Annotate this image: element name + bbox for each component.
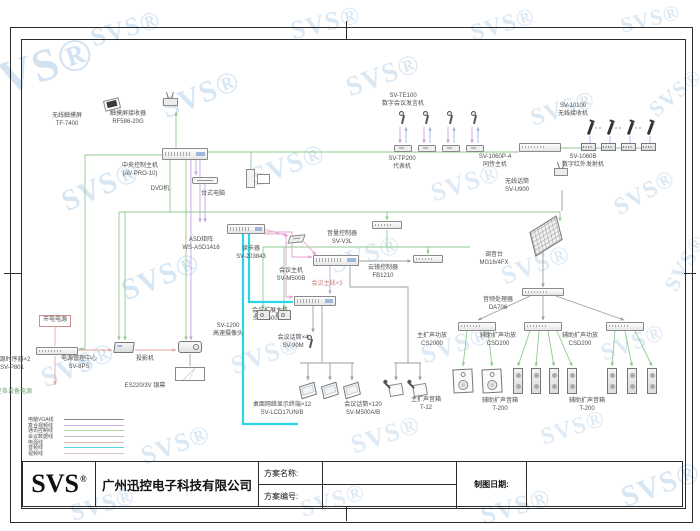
pantilt-controller-label: 云镜控制器 FB1210 — [338, 265, 428, 280]
wire-legend: 电脑VGA线复合视频线通讯控制线会议数据线电源线音频线视频线 — [28, 417, 124, 456]
interpretation-host-label: SV-1060P-4 同传主机 — [450, 154, 540, 169]
wire-k-57 — [556, 296, 624, 320]
delegate-unit-1-icon — [394, 145, 412, 152]
conference-host-icon — [313, 255, 359, 266]
logo-text: SVS — [31, 469, 79, 499]
wireless-mic-icon — [554, 168, 568, 176]
aux-speaker-1b-icon — [531, 368, 541, 394]
mixer-label: 调音台 MG16/4FX — [449, 252, 539, 267]
legend-line-sample — [64, 436, 124, 437]
main-speaker-1-icon — [452, 368, 473, 393]
conference-mic-top-3-icon — [447, 111, 455, 124]
scheme-name-label: 方案名称: — [259, 462, 323, 485]
schematic-sheet: { "title_block": { "logo": "SVS", "reg":… — [0, 0, 700, 531]
aux-speaker-2b-icon — [627, 368, 637, 394]
aux-speaker-1d-icon — [567, 368, 577, 394]
conference-mic-top-2-icon — [423, 111, 431, 124]
wire-m-43 — [264, 229, 288, 236]
title-block: SVS® 广州迅控电子科技有限公司 方案名称: 方案编号: 制图日期: — [22, 461, 683, 507]
wireless-mic-label: 无线话筒 SV-U900 — [472, 179, 562, 194]
ir-transmitter-1-icon — [581, 143, 596, 151]
conference-mic-120b-icon — [412, 383, 428, 397]
conference-trunk-label: 会议主线×3 — [282, 281, 372, 289]
wire-g-25 — [635, 331, 652, 366]
delegate-unit-2-icon — [418, 145, 436, 152]
aux-amp-1-label: 辅助扩声功放 CSD200 — [453, 333, 543, 348]
power-sequencer-icon — [36, 347, 78, 355]
registered-mark: ® — [80, 474, 87, 484]
central-controller-icon — [162, 148, 208, 160]
audio-processor-icon — [522, 288, 564, 296]
ir-transmitter-3-icon — [621, 143, 636, 151]
conference-mic-top-1-icon — [399, 111, 407, 124]
ir-transmitter-4-icon — [641, 143, 656, 151]
card-reader-label: 读卡器 SV-203843 — [206, 246, 296, 261]
aux-speaker-2a-icon — [607, 368, 617, 394]
drawing-date-label: 制图日期: — [457, 462, 527, 506]
conference-mic-120a-icon — [388, 383, 404, 397]
pantilt-controller-icon — [413, 255, 443, 263]
aux-speaker-1a-icon — [513, 368, 523, 394]
touchscreen-receiver-label: 触摸屏接收器 RF586-20G — [83, 111, 173, 126]
legend-line-sample — [64, 419, 124, 420]
ir-transmitter-2-icon — [601, 143, 616, 151]
touchscreen-receiver-icon — [163, 98, 178, 106]
ir-transmitter-4-label: SV-1060B 数字红外发射机 — [538, 154, 628, 169]
central-controller-label: 中央控制主机 (AV-PRO-10) — [95, 163, 185, 178]
scheme-name-value — [323, 462, 457, 485]
projection-screen-icon — [175, 367, 205, 381]
volume-controller-icon — [372, 221, 402, 229]
conference-ext-host-label: 会议扩展主机 SV-M500B-2 — [225, 308, 315, 323]
aux-speaker-1d-label: 辅助扩声音箱 T-200 — [455, 398, 545, 413]
company-logo: SVS® — [23, 462, 96, 506]
audio-processor-label: 音频处理器 DA706 — [453, 297, 543, 312]
wire-g-16 — [79, 155, 162, 349]
aux-amp-2-icon — [606, 322, 644, 331]
desktop-terminal-3-label: 桌面网络显示终端×12 SV-LCD17UN/B — [237, 402, 327, 417]
interpretation-host-icon — [519, 143, 561, 152]
dvd-player-icon — [192, 177, 218, 184]
conference-mic-top-4-icon — [471, 111, 479, 124]
speed-camera-2-icon — [278, 310, 291, 320]
scheme-no-label: 方案编号: — [259, 485, 323, 508]
projection-screen-label: ES220/3V 银幕 — [100, 383, 190, 391]
conference-ext-host-icon — [294, 296, 336, 306]
legend-line-sample — [64, 442, 124, 443]
main-amp-icon — [458, 322, 496, 331]
legend-line-sample — [64, 453, 124, 454]
speed-camera-1-icon — [257, 310, 270, 320]
legend-line-sample — [64, 425, 124, 426]
legend-label: 视频线 — [28, 450, 64, 457]
aux-amp-2-label: 辅助扩声功放 CSD200 — [535, 333, 625, 348]
delegate-unit-4-icon — [466, 145, 484, 152]
desktop-pc-label: 台式电脑 — [168, 191, 258, 199]
av-matrix-icon — [227, 224, 265, 234]
aux-amp-1-icon — [524, 322, 562, 331]
scheme-no-value — [323, 485, 457, 508]
legend-line-sample — [64, 430, 124, 431]
delegate-unit-3-icon — [442, 145, 460, 152]
main-speaker-2-icon — [481, 368, 502, 393]
delegate-unit-4-label: SV-TP200 代表机 — [357, 156, 447, 171]
mains-power-label: 市电电源 — [39, 315, 71, 327]
projector-icon — [178, 341, 202, 353]
volume-controller-label: 音量控制器 SV-V3L — [297, 231, 387, 246]
conference-mic-4-label: 会议话筒×4 SV-90M — [248, 335, 338, 350]
aux-speaker-2c-label: 辅助扩声音箱 T-200 — [542, 398, 632, 413]
legend-line-sample — [64, 447, 124, 448]
to-device-power-label: 至各设备电源 — [0, 389, 59, 397]
conference-mic-top-4-label: SV-TE100 数字会议发言机 — [358, 93, 448, 108]
power-mgmt-center-icon — [113, 342, 135, 353]
aux-speaker-2c-icon — [647, 368, 657, 394]
aux-speaker-1c-icon — [549, 368, 559, 394]
wire-g-24 — [625, 331, 632, 366]
legend-row-6: 视频线 — [28, 451, 124, 457]
drawing-date-value — [527, 462, 684, 506]
company-name: 广州迅控电子科技有限公司 — [96, 462, 259, 506]
projector-label: 投影机 — [100, 356, 190, 364]
desktop-pc-icon — [246, 168, 270, 188]
ir-antenna-4-label: SV-10100 无线接收机 — [528, 103, 618, 118]
